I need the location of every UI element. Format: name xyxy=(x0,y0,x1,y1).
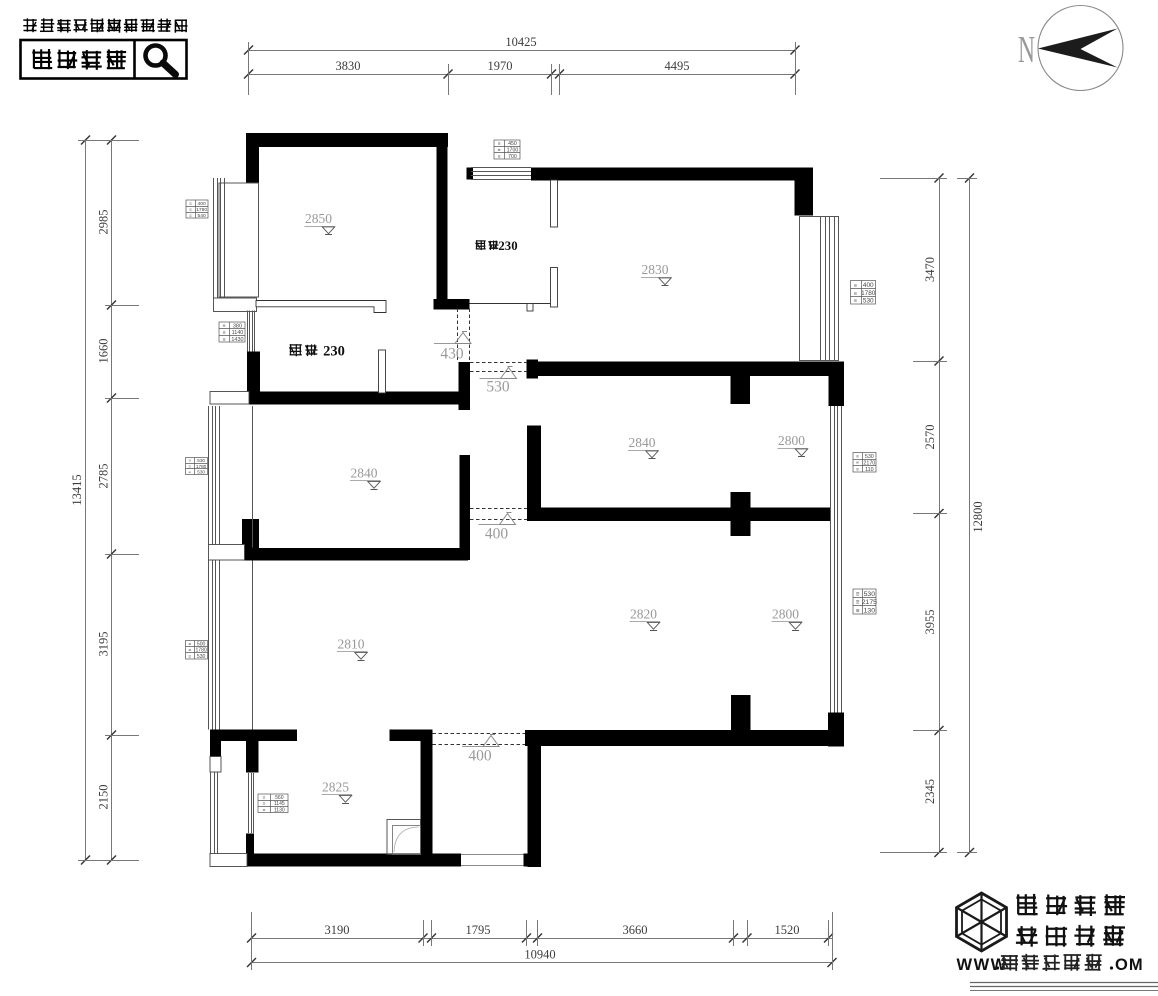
svg-text:≡: ≡ xyxy=(189,207,192,212)
svg-text:1430: 1430 xyxy=(231,337,243,343)
svg-text:2825: 2825 xyxy=(322,780,349,795)
svg-text:530: 530 xyxy=(197,469,205,474)
svg-text:3195: 3195 xyxy=(97,632,111,657)
svg-text:≡: ≡ xyxy=(263,807,266,812)
svg-text:1520: 1520 xyxy=(775,923,800,937)
svg-text:≡: ≡ xyxy=(854,299,858,305)
svg-text:130: 130 xyxy=(864,608,876,615)
svg-text:400: 400 xyxy=(468,748,492,765)
svg-text:540: 540 xyxy=(198,213,206,219)
svg-text:400: 400 xyxy=(485,526,509,543)
svg-text:2570: 2570 xyxy=(923,425,937,450)
svg-text:1780: 1780 xyxy=(861,290,876,297)
svg-text:400: 400 xyxy=(863,282,874,289)
svg-text:380: 380 xyxy=(233,323,242,329)
svg-text:2800: 2800 xyxy=(778,433,805,448)
svg-text:1700: 1700 xyxy=(507,148,519,154)
svg-text:2170: 2170 xyxy=(863,460,875,466)
svg-text:2175: 2175 xyxy=(862,599,877,606)
svg-text:1970: 1970 xyxy=(488,59,513,73)
svg-text:≡: ≡ xyxy=(498,155,501,160)
svg-text:2800: 2800 xyxy=(772,607,799,622)
svg-text:400: 400 xyxy=(198,201,206,207)
svg-text:≡: ≡ xyxy=(223,330,226,336)
svg-text:≡: ≡ xyxy=(856,599,860,606)
svg-text:1660: 1660 xyxy=(97,339,111,364)
svg-text:2830: 2830 xyxy=(642,262,669,277)
svg-text:≡: ≡ xyxy=(856,461,859,466)
svg-text:430: 430 xyxy=(440,346,464,363)
svg-text:≡: ≡ xyxy=(856,468,859,473)
svg-text:2985: 2985 xyxy=(97,210,111,235)
svg-text:3470: 3470 xyxy=(923,257,937,282)
svg-text:230: 230 xyxy=(323,344,345,360)
svg-text:3955: 3955 xyxy=(923,610,937,635)
svg-text:≡: ≡ xyxy=(189,201,192,206)
svg-text:2840: 2840 xyxy=(351,466,378,481)
svg-text:530: 530 xyxy=(486,379,510,396)
svg-text:110: 110 xyxy=(865,467,874,473)
svg-text:560: 560 xyxy=(275,795,284,801)
svg-text:530: 530 xyxy=(865,454,874,460)
svg-text:≡: ≡ xyxy=(223,337,226,343)
svg-text:1795: 1795 xyxy=(466,923,491,937)
svg-text:≡: ≡ xyxy=(189,642,192,647)
svg-text:≡: ≡ xyxy=(854,283,858,289)
svg-text:230: 230 xyxy=(498,239,517,253)
svg-text:N: N xyxy=(1018,28,1035,70)
svg-text:≡: ≡ xyxy=(189,648,192,653)
svg-text:530: 530 xyxy=(864,591,876,598)
svg-text:≡: ≡ xyxy=(223,323,226,329)
svg-text:1780: 1780 xyxy=(196,648,207,654)
svg-text:≡: ≡ xyxy=(189,654,192,659)
svg-text:1145: 1145 xyxy=(274,801,285,807)
svg-text:3830: 3830 xyxy=(336,59,361,73)
svg-text:530: 530 xyxy=(197,654,206,660)
svg-text:2150: 2150 xyxy=(97,785,111,810)
svg-text:2785: 2785 xyxy=(97,464,111,489)
svg-text:12800: 12800 xyxy=(971,501,985,532)
svg-text:≡: ≡ xyxy=(856,591,860,598)
svg-text:2345: 2345 xyxy=(923,779,937,804)
svg-text:10425: 10425 xyxy=(505,35,536,49)
svg-text:≡: ≡ xyxy=(856,455,859,460)
svg-text:≡: ≡ xyxy=(263,801,266,806)
svg-text:500: 500 xyxy=(197,642,206,648)
svg-text:2840: 2840 xyxy=(629,435,656,450)
svg-text:1780: 1780 xyxy=(196,464,207,469)
svg-text:10940: 10940 xyxy=(524,948,555,962)
svg-text:13415: 13415 xyxy=(70,474,84,505)
svg-text:≡: ≡ xyxy=(854,291,858,297)
svg-text:530: 530 xyxy=(197,458,205,463)
svg-text:450: 450 xyxy=(508,141,517,147)
svg-text:3660: 3660 xyxy=(623,923,648,937)
svg-text:≡: ≡ xyxy=(856,608,860,615)
svg-text:≡: ≡ xyxy=(263,795,266,800)
svg-text:1780: 1780 xyxy=(196,207,207,213)
svg-text:OM: OM xyxy=(1115,956,1144,974)
svg-text:WWW: WWW xyxy=(957,956,1008,974)
svg-text:3190: 3190 xyxy=(325,923,350,937)
svg-text:2850: 2850 xyxy=(305,211,332,226)
svg-text:700: 700 xyxy=(508,154,517,160)
svg-text:1130: 1130 xyxy=(274,807,285,813)
svg-text:≡: ≡ xyxy=(189,213,192,218)
svg-text:1140: 1140 xyxy=(232,330,244,336)
svg-text:4495: 4495 xyxy=(665,59,690,73)
svg-text:2810: 2810 xyxy=(338,637,365,652)
svg-text:≡: ≡ xyxy=(498,149,501,154)
svg-text:530: 530 xyxy=(863,298,874,305)
svg-text:≡: ≡ xyxy=(498,142,501,147)
svg-text:2820: 2820 xyxy=(630,607,657,622)
